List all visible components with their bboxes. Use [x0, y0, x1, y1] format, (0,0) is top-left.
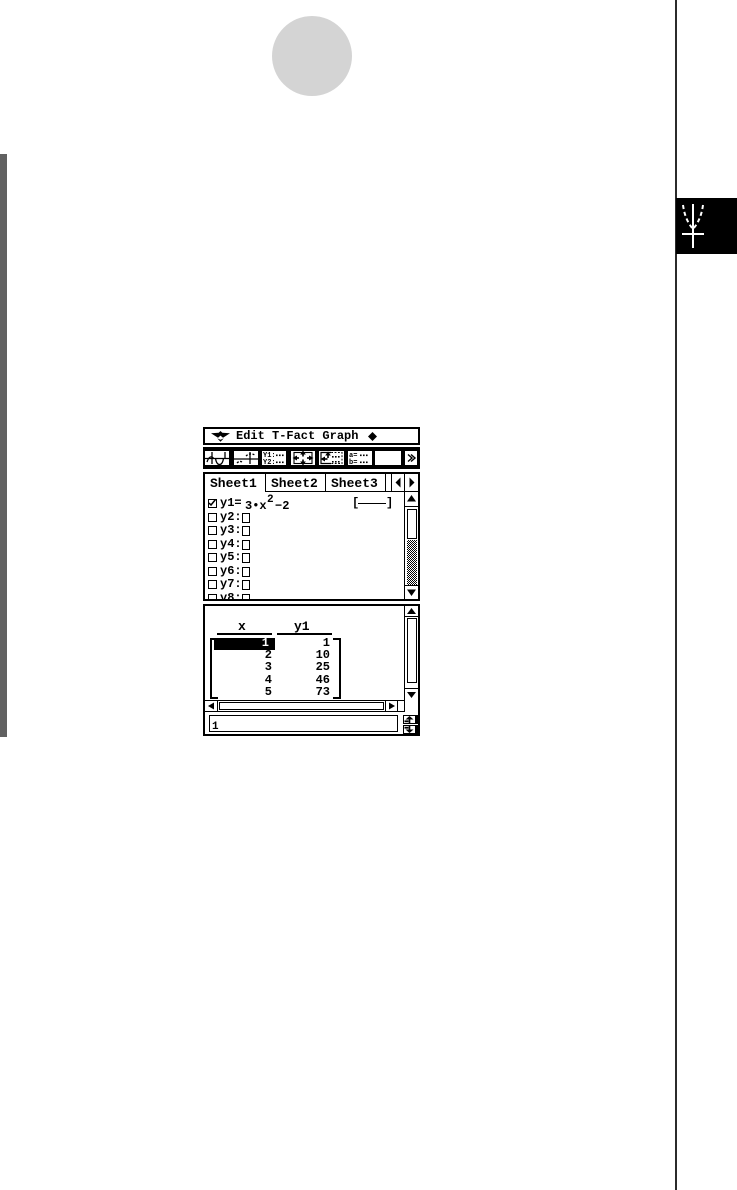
svg-text:b=: b=	[349, 459, 357, 465]
svg-text:Y2:: Y2:	[263, 459, 276, 465]
